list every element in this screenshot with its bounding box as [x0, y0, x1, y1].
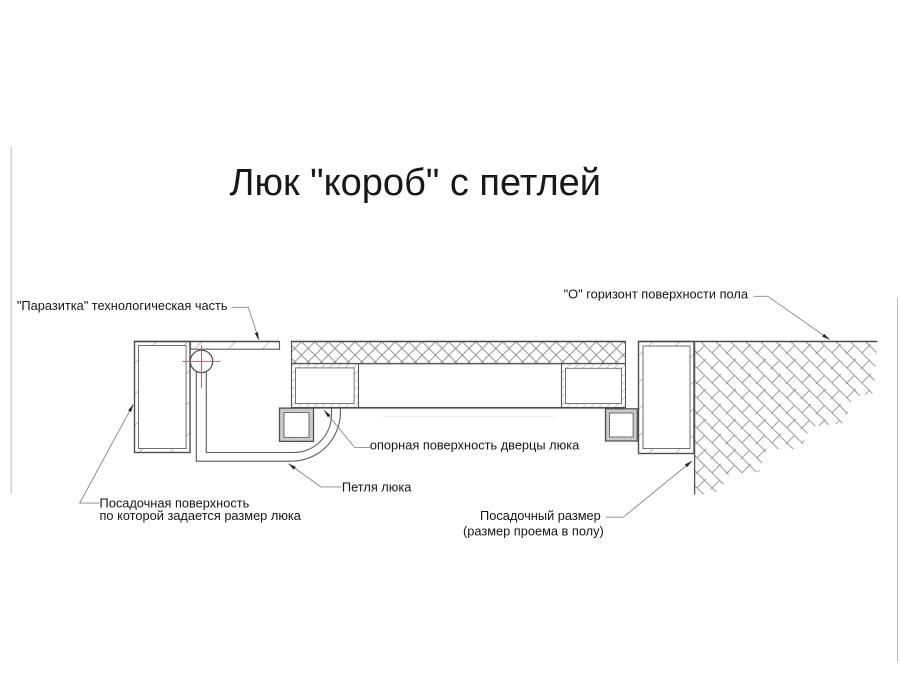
svg-text:"О" горизонт поверхности пола: "О" горизонт поверхности пола	[564, 287, 749, 302]
svg-text:"Паразитка" технологическая ча: "Паразитка" технологическая часть	[17, 298, 228, 313]
svg-text:Петля люка: Петля люка	[342, 479, 412, 494]
svg-text:по которой задается размер люк: по которой задается размер люка	[100, 508, 302, 523]
svg-text:опорная поверхность дверцы люк: опорная поверхность дверцы люка	[370, 437, 580, 452]
svg-text:(размер проема в полу): (размер проема в полу)	[463, 523, 604, 538]
svg-text:Посадочный размер: Посадочный размер	[480, 508, 601, 523]
svg-text:Люк "короб" с петлей: Люк "короб" с петлей	[230, 162, 601, 204]
